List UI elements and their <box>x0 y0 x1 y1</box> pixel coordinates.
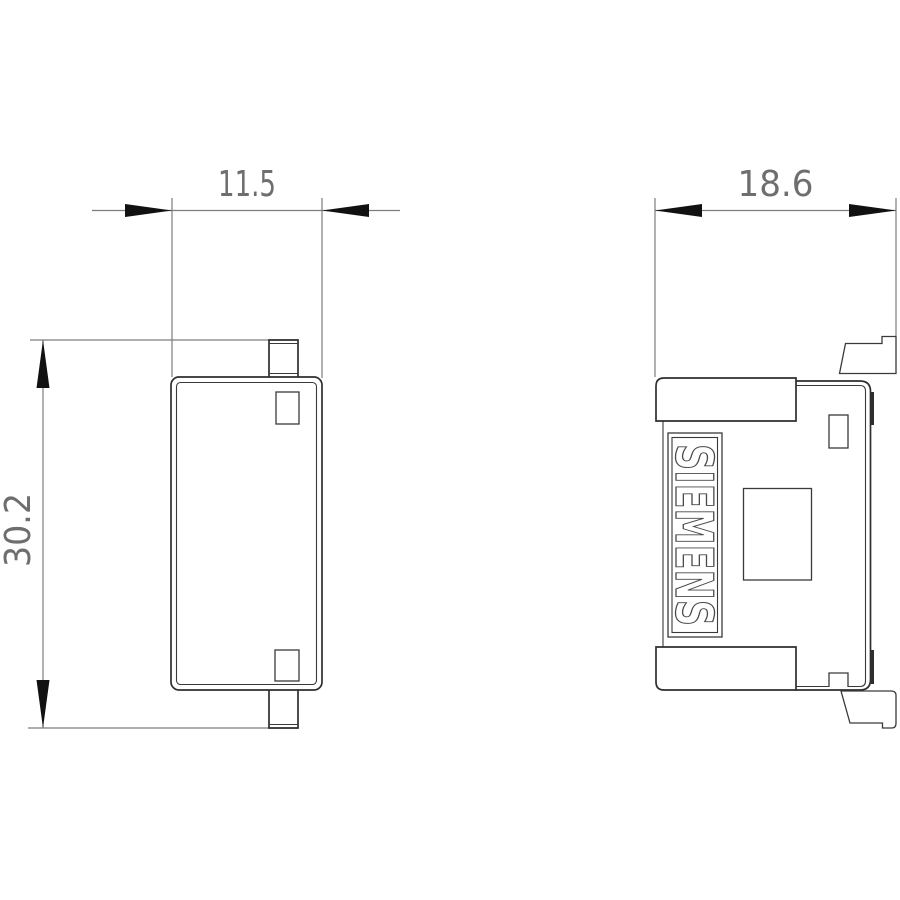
side-body: SIEMENS <box>656 337 896 729</box>
arrowhead-right-icon <box>125 204 172 217</box>
arrowhead-up-icon <box>37 340 50 388</box>
front-body <box>171 340 322 728</box>
latch-bar-bottom <box>871 650 875 684</box>
latch-bar-top <box>871 392 875 425</box>
detail-window <box>744 489 812 581</box>
dim-label-front-width: 11.5 <box>218 164 276 205</box>
drawing-canvas: 11.5 30.2 <box>0 0 900 900</box>
top-terminal-band <box>656 378 796 421</box>
arrowhead-left-icon <box>655 204 702 217</box>
cutout-bottom <box>275 650 299 681</box>
dim-label-side-width: 18.6 <box>738 164 814 205</box>
arrowhead-left-icon <box>322 204 369 217</box>
cutout-top <box>276 392 299 424</box>
side-view: 18.6 <box>655 164 896 728</box>
top-tab <box>269 340 298 377</box>
bottom-terminal-band <box>656 647 796 690</box>
dim-label-front-height: 30.2 <box>0 493 39 567</box>
detail-slot <box>829 415 848 448</box>
arrowhead-down-icon <box>37 680 50 728</box>
brand-label: SIEMENS <box>663 444 723 626</box>
din-clip-bottom <box>841 691 896 728</box>
bottom-tab <box>269 690 298 728</box>
dim-front-width: 11.5 <box>92 164 400 378</box>
bottom-notch-tab <box>829 673 848 687</box>
din-clip-top <box>840 337 897 374</box>
arrowhead-right-icon <box>849 204 896 217</box>
front-view: 11.5 30.2 <box>0 164 400 728</box>
technical-drawing: 11.5 30.2 <box>0 0 900 900</box>
brand-plate: SIEMENS <box>663 433 723 637</box>
